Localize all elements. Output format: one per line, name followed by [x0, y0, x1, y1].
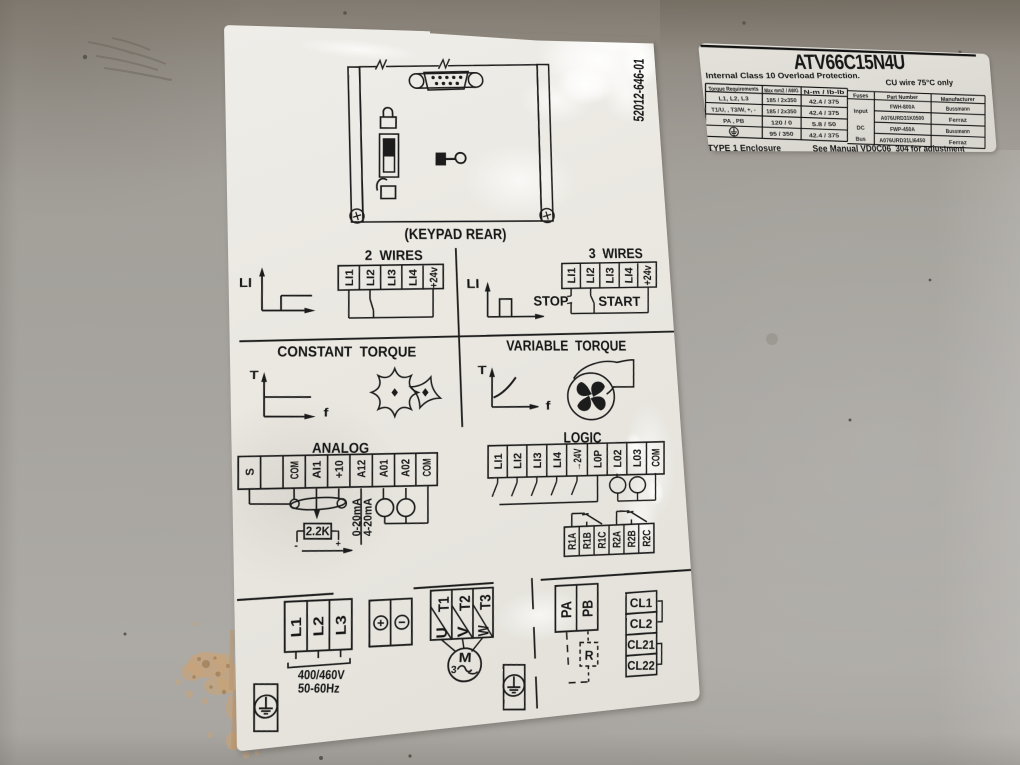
- svg-text:3: 3: [451, 665, 458, 677]
- svg-text:+24v: +24v: [429, 266, 441, 288]
- svg-text:42.4 / 375: 42.4 / 375: [809, 111, 840, 117]
- svg-text:LI2: LI2: [584, 267, 597, 284]
- svg-text:M: M: [458, 650, 472, 666]
- svg-text:+24v: +24v: [641, 265, 653, 286]
- svg-text:50-60Hz: 50-60Hz: [297, 681, 340, 696]
- svg-text:A076URD31LI6450: A076URD31LI6450: [879, 137, 926, 144]
- svg-text:LI3: LI3: [387, 269, 399, 286]
- svg-text:LI4: LI4: [408, 268, 420, 286]
- svg-text:COM: COM: [422, 458, 434, 476]
- svg-text:Manufacturer: Manufacturer: [941, 97, 976, 103]
- svg-text:LI4: LI4: [623, 267, 636, 284]
- svg-text:TYPE 1 Enclosure: TYPE 1 Enclosure: [707, 143, 781, 152]
- svg-text:T: T: [477, 363, 487, 377]
- svg-text:LI3: LI3: [532, 452, 543, 468]
- svg-text:120 / 0: 120 / 0: [771, 120, 793, 126]
- svg-text:52012-646-01: 52012-646-01: [631, 58, 648, 123]
- svg-text:LI: LI: [466, 277, 479, 291]
- svg-text:5.8 / 50: 5.8 / 50: [812, 122, 837, 128]
- svg-text:V: V: [455, 626, 472, 638]
- svg-text:Bussmann: Bussmann: [945, 128, 970, 135]
- svg-text:R2C: R2C: [640, 529, 653, 546]
- svg-text:Max mm2 / AWG: Max mm2 / AWG: [764, 88, 799, 94]
- svg-text:Input: Input: [853, 109, 868, 115]
- svg-text:L3: L3: [333, 614, 349, 635]
- svg-text:CU wire 75°C only: CU wire 75°C only: [885, 79, 954, 88]
- svg-text:A076URD31K0500: A076URD31K0500: [880, 116, 924, 122]
- svg-text:LI1: LI1: [493, 453, 505, 469]
- svg-text:PB: PB: [580, 600, 596, 617]
- svg-text:L02: L02: [611, 449, 624, 467]
- svg-text:2.2K: 2.2K: [305, 524, 330, 539]
- svg-text:R: R: [584, 647, 593, 662]
- svg-text:CONSTANT TORQUE: CONSTANT TORQUE: [277, 344, 416, 360]
- svg-text:+: +: [335, 538, 341, 548]
- svg-text:185 / 2x350: 185 / 2x350: [766, 98, 797, 104]
- svg-text:PA , PB: PA , PB: [723, 119, 745, 125]
- svg-text:L03: L03: [631, 449, 644, 467]
- svg-text:T2: T2: [457, 595, 474, 611]
- svg-text:VARIABLE TORQUE: VARIABLE TORQUE: [506, 338, 626, 354]
- svg-text:AI1: AI1: [311, 460, 324, 478]
- svg-text:LI2: LI2: [513, 453, 525, 469]
- svg-text:PA: PA: [559, 601, 575, 619]
- svg-text:A12: A12: [356, 460, 368, 478]
- svg-text:L1: L1: [288, 616, 304, 638]
- svg-text:W: W: [476, 624, 493, 636]
- svg-text:Ferraz: Ferraz: [948, 116, 967, 123]
- svg-text:L0P: L0P: [591, 450, 604, 468]
- svg-text:FWP-450A: FWP-450A: [890, 126, 916, 133]
- svg-text:A01: A01: [378, 459, 390, 477]
- svg-text:L2: L2: [311, 615, 327, 636]
- svg-text:L1, L2, L3: L1, L2, L3: [718, 96, 749, 102]
- svg-text:→24V: →24V: [572, 448, 584, 470]
- svg-text:U: U: [435, 627, 451, 639]
- svg-text:CL21: CL21: [627, 638, 655, 652]
- svg-text:3 WIRES: 3 WIRES: [588, 246, 643, 262]
- svg-text:CL2: CL2: [630, 617, 653, 631]
- svg-text:LI3: LI3: [604, 267, 617, 284]
- svg-text:+10: +10: [334, 460, 346, 478]
- svg-text:Bus: Bus: [855, 137, 866, 143]
- svg-text:STOP: STOP: [533, 294, 569, 309]
- svg-text:42.4 / 375: 42.4 / 375: [809, 133, 840, 139]
- svg-text:185 / 2x350: 185 / 2x350: [766, 109, 797, 115]
- svg-text:T: T: [249, 368, 259, 382]
- svg-text:Fuses: Fuses: [853, 93, 869, 99]
- svg-text:R1B: R1B: [581, 532, 593, 549]
- svg-text:T1: T1: [436, 596, 453, 612]
- svg-text:2 WIRES: 2 WIRES: [365, 249, 424, 264]
- svg-text:LI1: LI1: [344, 269, 356, 286]
- svg-text:LI1: LI1: [565, 267, 578, 284]
- svg-text:See Manual VD0C06_304 for adj: See Manual VD0C06_304 for adjustment: [812, 144, 965, 152]
- svg-text:R1C: R1C: [596, 531, 608, 548]
- svg-text:(KEYPAD REAR): (KEYPAD REAR): [404, 227, 506, 243]
- svg-text:S: S: [244, 468, 257, 476]
- svg-text:DC: DC: [856, 126, 865, 132]
- svg-text:N-m / lb-lb: N-m / lb-lb: [803, 90, 844, 96]
- svg-text:42.4 / 375: 42.4 / 375: [809, 99, 840, 105]
- svg-text:Bussmann: Bussmann: [945, 105, 970, 112]
- svg-text:COM: COM: [289, 461, 302, 479]
- svg-text:T1/U, , T3/W, +, -: T1/U, , T3/W, +, -: [711, 107, 756, 113]
- svg-text:START: START: [598, 295, 641, 310]
- svg-text:f: f: [323, 405, 328, 419]
- svg-text:Internal Class 10 Overload Pro: Internal Class 10 Overload Protection.: [705, 70, 860, 79]
- svg-text:A02: A02: [400, 459, 412, 477]
- svg-text:LI2: LI2: [365, 269, 377, 286]
- svg-text:95 / 350: 95 / 350: [769, 132, 794, 138]
- svg-text:CL22: CL22: [627, 659, 655, 673]
- svg-text:LI: LI: [239, 275, 252, 290]
- svg-text:LI4: LI4: [551, 451, 563, 468]
- svg-text:COM: COM: [649, 449, 662, 467]
- svg-text:R2B: R2B: [625, 530, 638, 547]
- svg-text:f: f: [545, 399, 551, 412]
- svg-text:CL1: CL1: [630, 596, 653, 610]
- svg-text:FWH-800A: FWH-800A: [890, 105, 915, 111]
- svg-text:T3: T3: [478, 594, 495, 610]
- svg-text:R1A: R1A: [566, 532, 578, 550]
- svg-text:R2A: R2A: [610, 531, 623, 548]
- svg-text:4-20mA: 4-20mA: [362, 498, 374, 536]
- svg-text:Torque Requirements: Torque Requirements: [708, 86, 759, 92]
- svg-text:Part Number: Part Number: [887, 95, 919, 101]
